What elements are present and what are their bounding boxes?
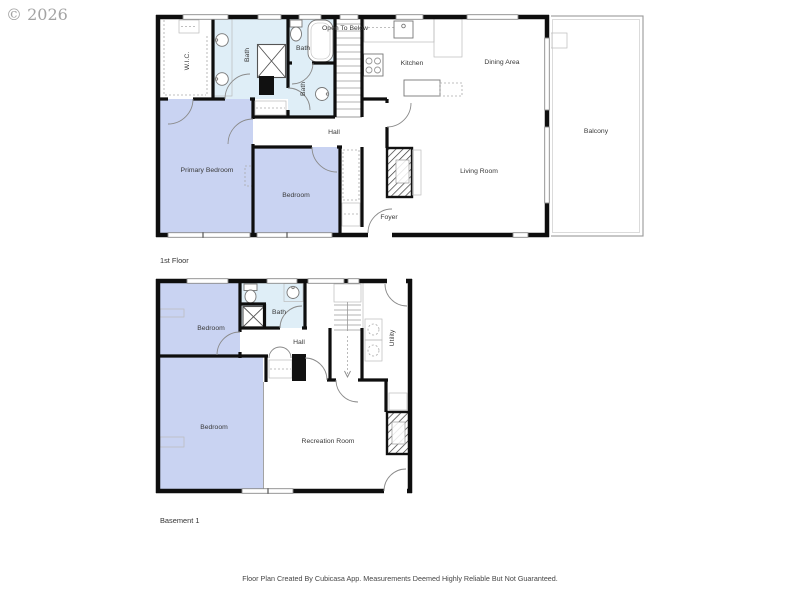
shower (258, 45, 286, 78)
room-label-bedroom-first: Bedroom (282, 192, 310, 199)
room-label-ensuite-bath: Bath (244, 48, 251, 62)
room-label-lower-bath: Bath (300, 82, 307, 96)
basement-floor-name: Basement 1 (160, 516, 199, 525)
utility-door-gap (387, 278, 406, 283)
room-label-primary-bedroom: Primary Bedroom (181, 167, 234, 174)
first-floor-name: 1st Floor (160, 256, 189, 265)
room-label-open-to-below: Open To Below (322, 25, 368, 32)
room-label-basement-hall: Hall (293, 339, 305, 346)
toilet (244, 284, 257, 291)
room-label-wic: W.I.C. (184, 52, 191, 71)
floor-plan-page: © 2026 (0, 0, 800, 600)
balcony-area (549, 16, 643, 236)
room-label-recreation-room: Recreation Room (302, 438, 355, 445)
stove (364, 54, 384, 76)
room-label-utility: Utility (389, 329, 396, 346)
toilet (245, 290, 256, 303)
room-label-foyer: Foyer (380, 214, 398, 221)
room-label-basement-bath: Bath (272, 309, 286, 316)
first-floor-plan: W.I.C. Bath Bath Bath Open To Below Kitc… (154, 14, 643, 265)
shower (243, 307, 264, 328)
chimney (259, 76, 274, 95)
room-label-dining: Dining Area (484, 59, 519, 66)
copyright-watermark: © 2026 (6, 5, 68, 24)
kitchen-sink (394, 21, 413, 38)
front-door-gap (368, 232, 392, 237)
room-label-hall-first: Hall (328, 129, 340, 136)
room-label-kitchen: Kitchen (401, 60, 424, 67)
toilet (291, 27, 302, 41)
room-label-basement-bedroom-lower: Bedroom (200, 424, 228, 431)
room-label-basement-bedroom-upper: Bedroom (197, 325, 225, 332)
room-label-upper-bath: Bath (296, 45, 310, 52)
room-label-living-room: Living Room (460, 168, 498, 175)
toilet (290, 20, 302, 27)
footer-disclaimer: Floor Plan Created By Cubicasa App. Meas… (242, 574, 558, 583)
lower-bath-fixtures (316, 88, 329, 101)
floor-plan-canvas: © 2026 (0, 0, 800, 600)
kitchen-island (404, 80, 440, 96)
room-label-balcony: Balcony (584, 128, 609, 135)
chimney (292, 354, 306, 381)
patio-door-gap (384, 488, 407, 493)
room-bedroom (253, 147, 340, 235)
basement-plan: Bedroom Bath Hall Utility Bedroom Recrea… (154, 277, 416, 525)
room-basement-bedroom-upper (158, 279, 240, 356)
